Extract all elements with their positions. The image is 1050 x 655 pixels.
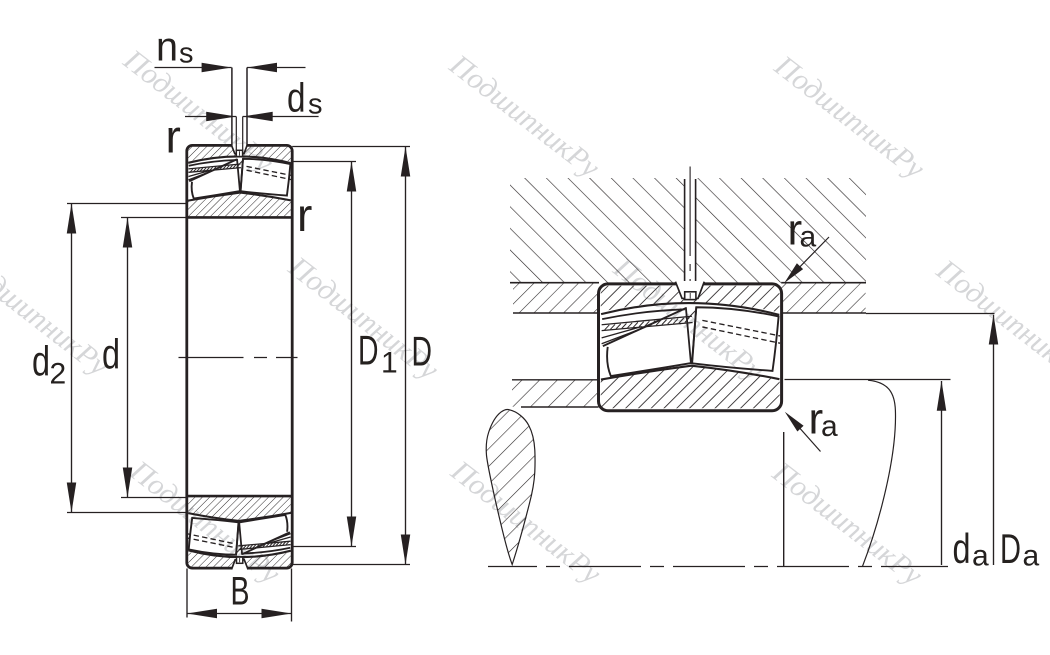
svg-text:d: d	[32, 338, 50, 385]
svg-text:ПодшипникРу: ПодшипникРу	[443, 48, 607, 185]
svg-text:d: d	[287, 75, 306, 121]
svg-text:1: 1	[381, 347, 398, 380]
svg-text:r: r	[166, 111, 181, 163]
svg-text:B: B	[231, 570, 250, 614]
svg-text:ПодшипникРу: ПодшипникРу	[123, 454, 287, 591]
svg-text:a: a	[972, 540, 989, 573]
svg-text:s: s	[308, 89, 323, 121]
svg-text:D: D	[412, 328, 433, 375]
svg-text:D: D	[358, 327, 379, 374]
svg-text:a: a	[821, 410, 838, 443]
svg-text:2: 2	[50, 358, 67, 391]
svg-text:a: a	[1023, 540, 1040, 573]
svg-text:a: a	[800, 221, 817, 254]
svg-text:ПодшипникРу: ПодшипникРу	[930, 253, 1050, 390]
svg-text:r: r	[297, 189, 312, 241]
svg-text:s: s	[179, 38, 194, 70]
svg-text:d: d	[953, 525, 971, 572]
svg-text:ПодшипникРу: ПодшипникРу	[766, 455, 930, 592]
svg-text:ПодшипникРу: ПодшипникРу	[768, 49, 932, 186]
svg-text:n: n	[156, 24, 178, 70]
svg-text:D: D	[1000, 525, 1021, 572]
svg-text:d: d	[102, 331, 120, 378]
